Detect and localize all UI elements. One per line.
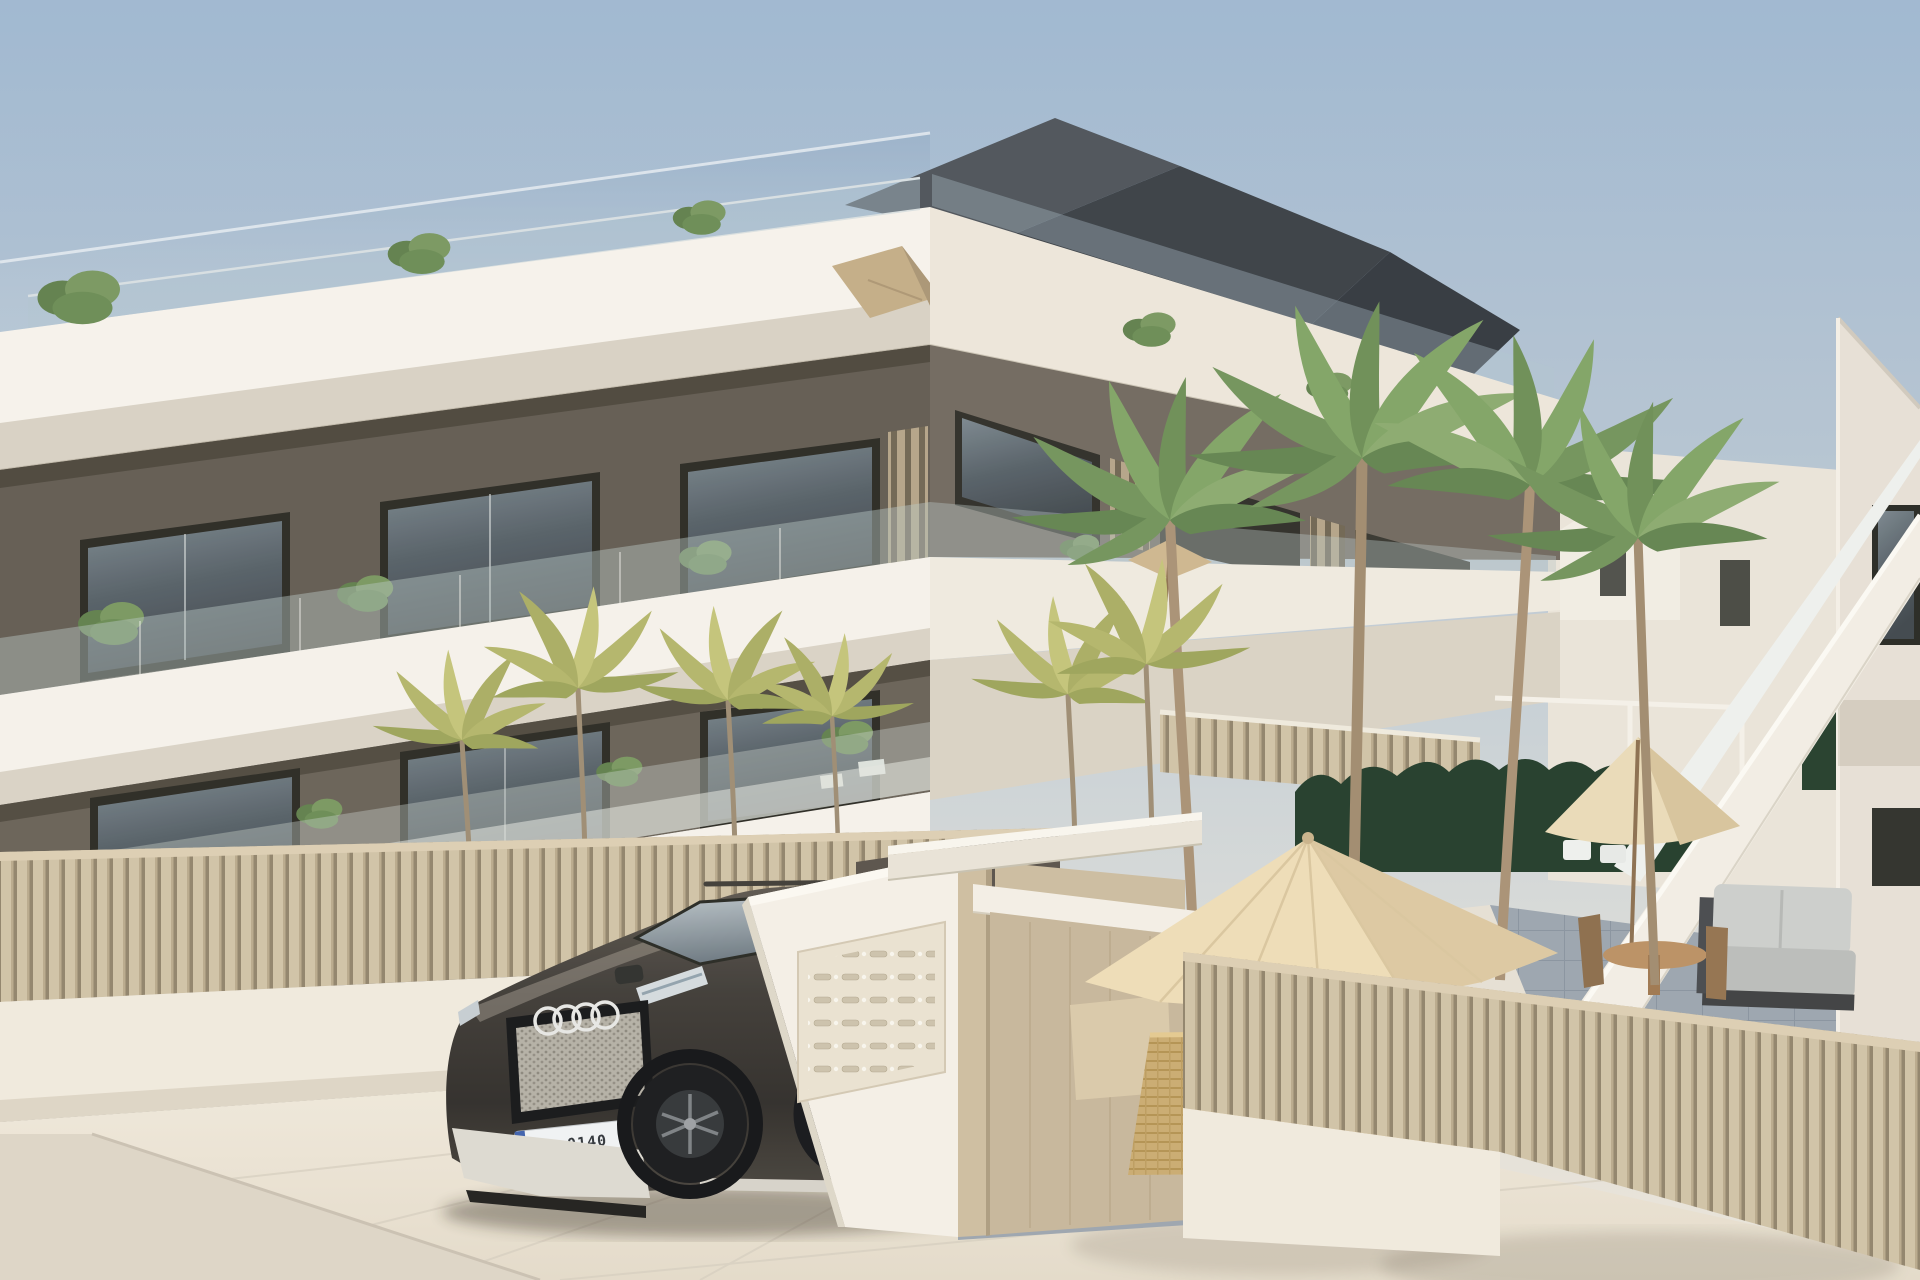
render-canvas: NA 0140 <box>0 0 1920 1280</box>
architectural-render-scene: NA 0140 <box>0 0 1920 1280</box>
light-wash <box>0 0 1920 1280</box>
